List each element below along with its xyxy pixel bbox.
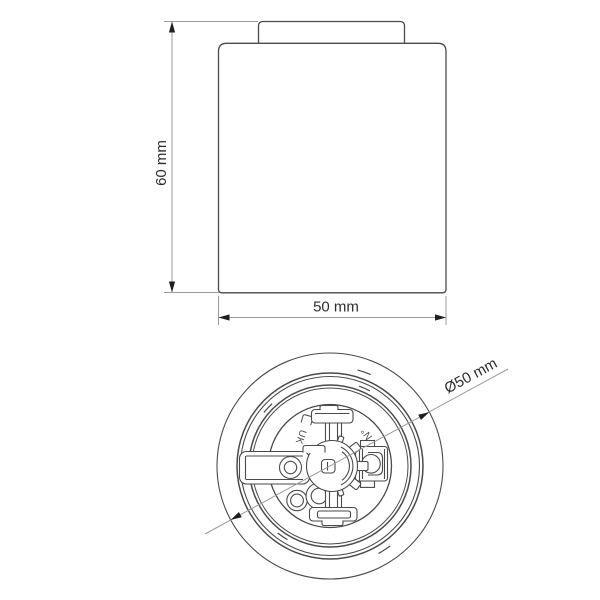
right-block-bottom-tab (361, 481, 375, 488)
arrow-down-icon (169, 282, 175, 293)
top-plate-tab-erase (321, 407, 338, 410)
arrow-left-icon (219, 314, 230, 320)
width-label: 50 mm (313, 299, 359, 316)
seam-arc (359, 386, 370, 391)
bottom-plate (310, 508, 358, 526)
side-view: 60 mm 50 mm (153, 22, 446, 326)
technical-drawing-page: 60 mm 50 mm UK (0, 0, 600, 600)
hub-center-notch (322, 460, 336, 474)
seam-arc (379, 546, 391, 554)
arrow-upper-right-icon (418, 412, 429, 420)
hub-side-tab (303, 446, 325, 453)
arrow-lower-left-icon (231, 512, 242, 520)
left-terminal-block (240, 452, 310, 485)
bottom-plate-outline (310, 508, 358, 522)
top-plate (312, 406, 354, 424)
terminal-screw-outer (280, 457, 302, 479)
arrow-up-icon (169, 22, 175, 33)
serial-marking: N° (359, 425, 375, 441)
height-label: 60 mm (153, 140, 170, 186)
seam-arc (358, 370, 371, 375)
lamp-holder-technical-drawing: 60 mm 50 mm UK (0, 0, 600, 600)
mounting-hole-outer (287, 490, 307, 510)
arrow-right-icon (435, 314, 446, 320)
cap-outline (259, 22, 405, 44)
mounting-hole (287, 490, 307, 510)
lamp-body-outline (219, 43, 447, 292)
diameter-label: Ø50 mm (442, 355, 501, 397)
top-plate-outline (312, 410, 354, 424)
uk-marking: UK (293, 428, 308, 446)
bottom-plate-tab-erase (323, 520, 343, 522)
height-dimension (164, 22, 258, 293)
bottom-view: UK N° (205, 353, 508, 579)
